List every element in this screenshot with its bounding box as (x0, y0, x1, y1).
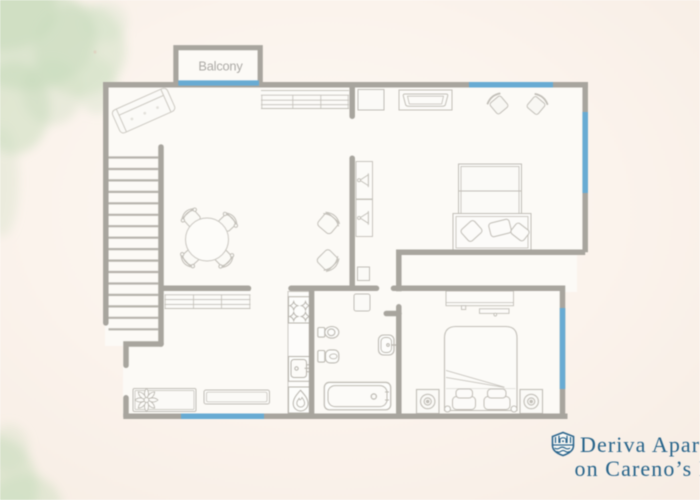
svg-text:Balcony: Balcony (198, 59, 243, 74)
svg-text:Deriva Apartments: Deriva Apartments (580, 432, 700, 457)
svg-text:on Careno’s Bay: on Careno’s Bay (575, 456, 700, 481)
